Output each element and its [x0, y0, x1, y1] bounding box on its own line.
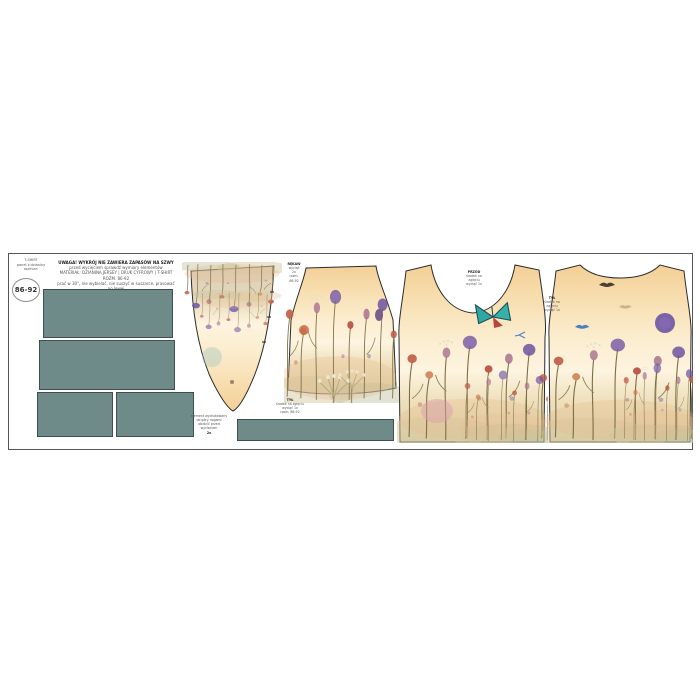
inverted-bodice-piece — [182, 262, 282, 417]
ribbing-piece-2 — [39, 340, 175, 390]
center-note-line: rozm. 86-92 — [267, 410, 313, 414]
ribbing-piece-5 — [237, 419, 394, 441]
size-badge: 86-92 — [12, 278, 40, 302]
ribbing-piece-1 — [43, 289, 173, 338]
inverted-bodice-outline — [191, 266, 274, 411]
back-label-line: wyciąć 1x — [537, 308, 567, 312]
center-note: TYŁ środek na zgięciu wyciąć 1x rozm. 86… — [267, 398, 313, 415]
front-piece-label: PRZÓD środek na zgięciu wyciąć 1x — [458, 270, 490, 287]
front-label-line: wyciąć 1x — [458, 282, 490, 286]
sleeve-label-line: 86-92 — [284, 279, 304, 283]
header-line: MATERIAŁ: DZIANINA JERSEY | DRUK CYFROWY… — [55, 270, 177, 280]
panel-header-note: UWAGA! WYKRÓJ NIE ZAWIERA ZAPASÓW NA SZW… — [55, 260, 177, 291]
inverted-note-line: 2x — [188, 431, 230, 435]
front-body-piece — [397, 261, 548, 443]
ribbing-piece-3 — [37, 392, 113, 437]
size-note: T-SHIRT panel z dzianiny rozmiar: — [13, 258, 49, 272]
size-note-line: rozmiar: — [13, 267, 49, 272]
back-body-piece — [547, 261, 693, 443]
back-piece-label: TYŁ środek na zgięciu wyciąć 1x — [537, 296, 567, 313]
inverted-piece-note: element wydrukowany do góry nogami obróc… — [188, 414, 230, 435]
fabric-panel: T-SHIRT panel z dzianiny rozmiar: 86-92 … — [8, 253, 693, 450]
size-badge-label: 86-92 — [15, 286, 37, 294]
sleeve-label: RĘKAW wyciąć 2x rozm. 86-92 — [284, 262, 304, 283]
